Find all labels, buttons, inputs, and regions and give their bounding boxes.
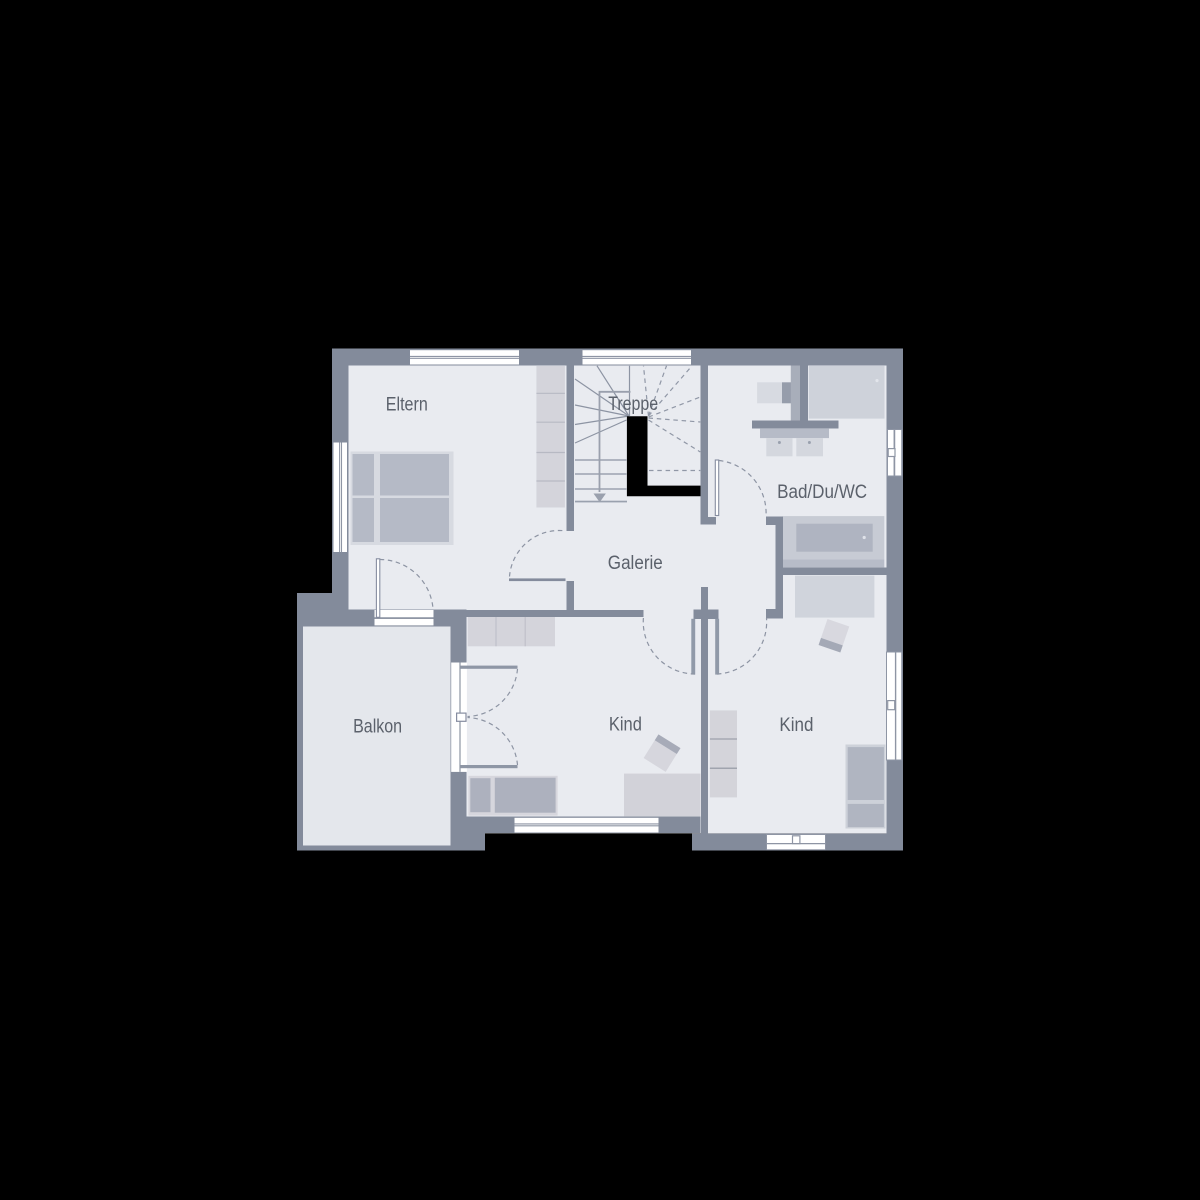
- svg-text:Treppe: Treppe: [608, 394, 658, 415]
- svg-text:Galerie: Galerie: [608, 553, 663, 574]
- svg-text:Balkon: Balkon: [353, 716, 402, 737]
- svg-text:Eltern: Eltern: [386, 395, 428, 416]
- svg-text:Kind: Kind: [609, 715, 642, 736]
- svg-text:Bad/Du/WC: Bad/Du/WC: [777, 482, 867, 503]
- svg-text:Kind: Kind: [779, 715, 813, 736]
